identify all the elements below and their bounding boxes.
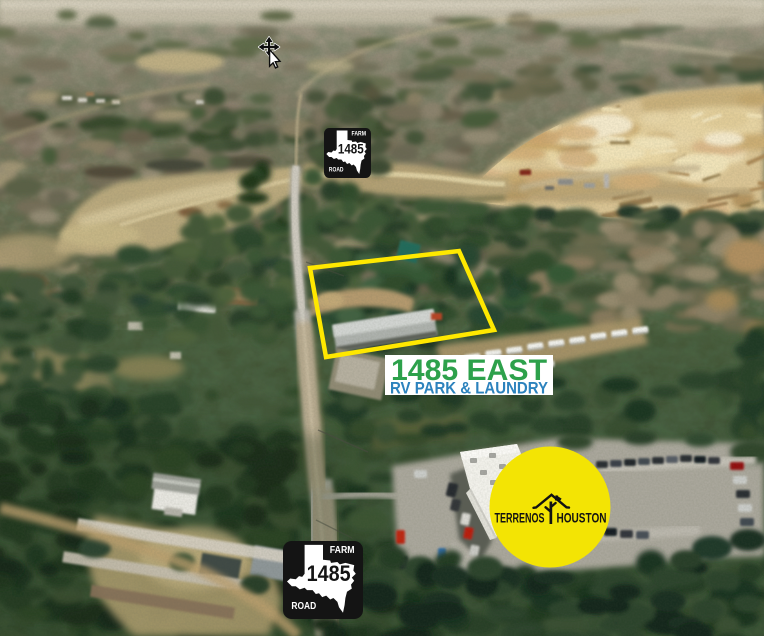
svg-text:1485: 1485 [307,561,351,586]
svg-text:RV PARK & LAUNDRY: RV PARK & LAUNDRY [390,380,548,398]
svg-text:HOUSTON: HOUSTON [557,511,607,526]
svg-text:FARM: FARM [330,545,355,556]
svg-text:ROAD: ROAD [291,601,316,612]
svg-text:TERRENOS: TERRENOS [495,511,545,526]
svg-text:ROAD: ROAD [329,167,344,174]
svg-text:1485: 1485 [338,141,364,156]
svg-text:FARM: FARM [351,131,366,138]
